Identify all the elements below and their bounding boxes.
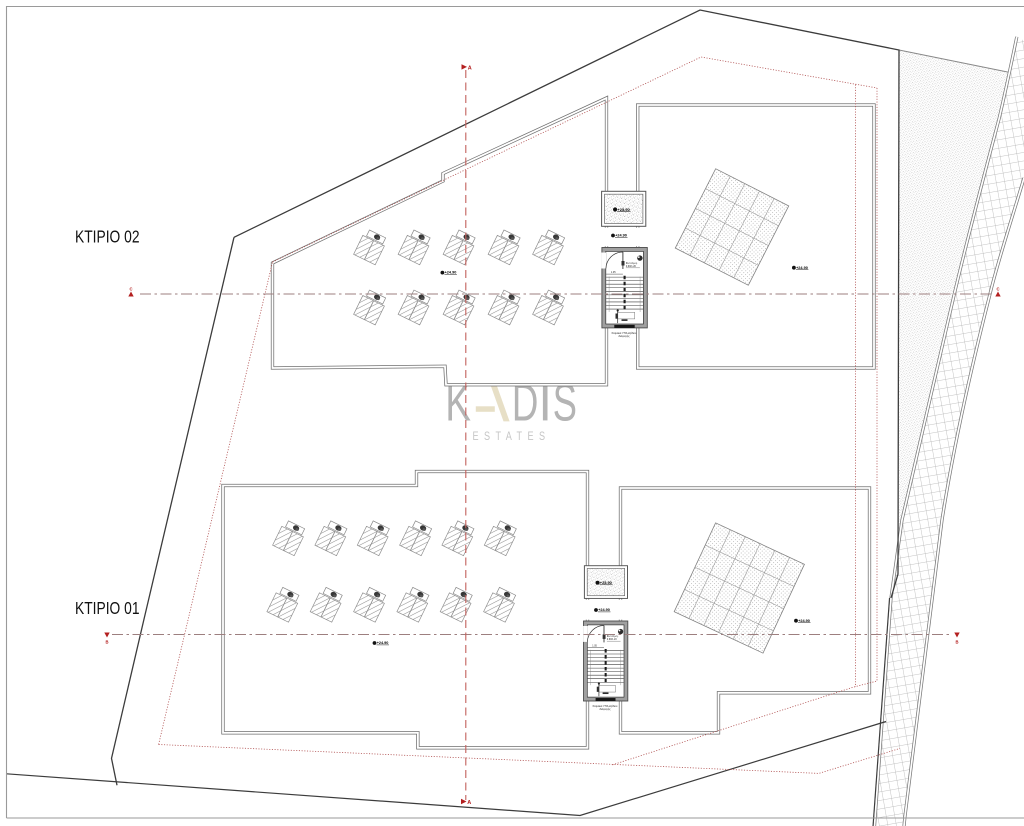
svg-text:+24.90: +24.90: [796, 266, 808, 270]
svg-text:C: C: [129, 287, 132, 292]
svg-text:1.05: 1.05: [611, 271, 616, 274]
svg-text:1.05: 1.05: [592, 644, 597, 647]
svg-text:ESTATES: ESTATES: [473, 429, 551, 443]
svg-text:A: A: [468, 65, 472, 71]
svg-text:διαφυγής: διαφυγής: [619, 334, 631, 338]
svg-text:0.90/1.20: 0.90/1.20: [607, 638, 617, 641]
svg-text:0.90/1.20: 0.90/1.20: [626, 265, 637, 268]
svg-text:+25.90: +25.90: [600, 581, 612, 585]
svg-text:+24.90: +24.90: [445, 271, 457, 275]
svg-text:+24.90: +24.90: [598, 608, 610, 612]
svg-text:+24.90: +24.90: [798, 619, 810, 623]
svg-text:KTIPIO 02: KTIPIO 02: [75, 226, 140, 246]
svg-text:KTIPIO 01: KTIPIO 01: [75, 598, 140, 618]
svg-text:+24.90: +24.90: [377, 641, 389, 645]
svg-text:+24.90: +24.90: [615, 234, 627, 238]
svg-text:+25.90: +25.90: [617, 207, 630, 212]
svg-text:B: B: [955, 640, 958, 645]
svg-text:C: C: [996, 287, 999, 292]
svg-text:B: B: [105, 640, 108, 645]
svg-text:διαφυγής: διαφυγής: [600, 707, 612, 711]
svg-text:A: A: [467, 800, 471, 806]
